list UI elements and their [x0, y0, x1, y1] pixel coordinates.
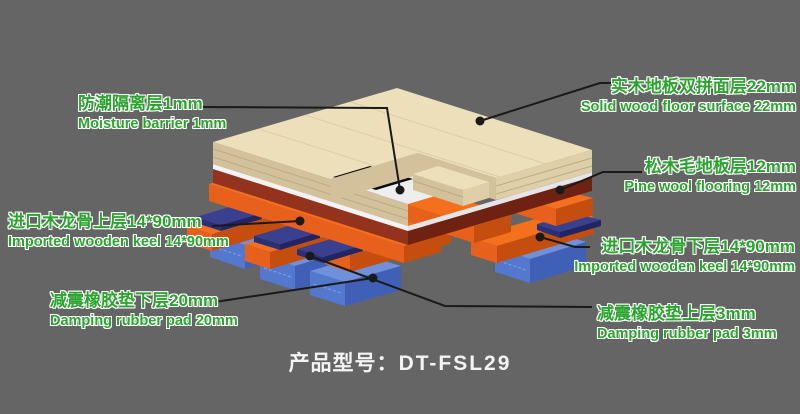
label-zh: 减震橡胶垫下层20mm — [50, 290, 238, 312]
product-model-label: 产品型号： — [289, 352, 399, 375]
label-zh: 实木地板双拼面层22mm — [581, 76, 796, 98]
label-solid-wood-surface: 实木地板双拼面层22mm Solid wood floor surface 22… — [581, 76, 796, 117]
callout-dot-solid-wood — [476, 117, 485, 126]
label-en: Pine wool flooring 12mm — [624, 178, 796, 197]
callout-dot-moisture — [396, 186, 405, 195]
flooring-diagram: 防潮隔离层1mm Moisture barrier 1mm 实木地板双拼面层22… — [0, 0, 800, 414]
label-zh: 减震橡胶垫上层3mm — [597, 303, 777, 325]
label-moisture-barrier: 防潮隔离层1mm Moisture barrier 1mm — [78, 93, 226, 134]
label-zh: 松木毛地板层12mm — [624, 156, 796, 178]
label-en: Moisture barrier 1mm — [78, 115, 226, 134]
callout-dot-damper-upper — [306, 252, 315, 261]
label-zh: 防潮隔离层1mm — [78, 93, 226, 115]
label-en: Damping rubber pad 20mm — [50, 312, 238, 331]
label-pine-flooring: 松木毛地板层12mm Pine wool flooring 12mm — [624, 156, 796, 197]
label-en: Imported wooden keel 14*90mm — [574, 258, 795, 277]
product-model-value: DT-FSL29 — [399, 352, 512, 375]
label-zh: 进口木龙骨下层14*90mm — [574, 236, 795, 258]
label-damper-lower: 减震橡胶垫下层20mm Damping rubber pad 20mm — [50, 290, 238, 331]
label-en: Damping rubber pad 3mm — [597, 325, 777, 344]
callout-dot-pine — [556, 186, 565, 195]
product-model-title: 产品型号：DT-FSL29 — [0, 347, 800, 377]
label-zh: 进口木龙骨上层14*90mm — [8, 211, 229, 233]
label-keel-upper: 进口木龙骨上层14*90mm Imported wooden keel 14*9… — [8, 211, 229, 252]
label-keel-lower: 进口木龙骨下层14*90mm Imported wooden keel 14*9… — [574, 236, 795, 277]
label-damper-upper: 减震橡胶垫上层3mm Damping rubber pad 3mm — [597, 303, 777, 344]
label-en: Imported wooden keel 14*90mm — [8, 233, 229, 252]
label-en: Solid wood floor surface 22mm — [581, 98, 796, 117]
callout-dot-keel-upper — [296, 217, 305, 226]
callout-dot-keel-lower — [536, 233, 545, 242]
